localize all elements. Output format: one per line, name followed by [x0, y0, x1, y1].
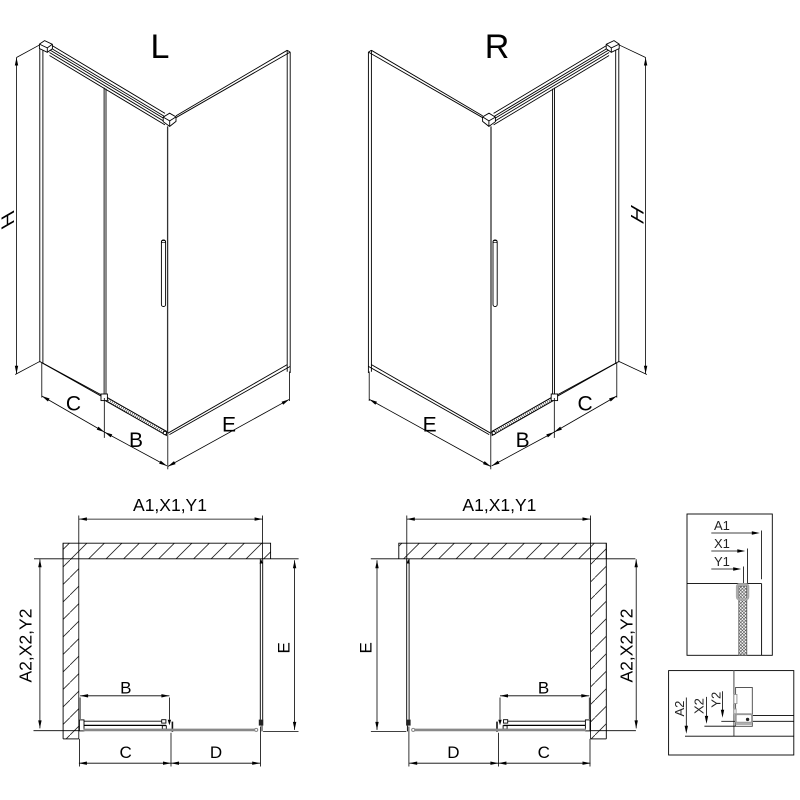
svg-text:E: E: [275, 642, 294, 653]
svg-text:A2,X2,Y2: A2,X2,Y2: [617, 609, 637, 683]
svg-text:C: C: [119, 743, 131, 762]
svg-text:B: B: [120, 679, 131, 698]
svg-text:X1: X1: [714, 536, 730, 551]
svg-text:C: C: [578, 393, 593, 416]
svg-text:C: C: [538, 743, 550, 762]
svg-text:X2: X2: [692, 698, 707, 714]
svg-text:A1: A1: [714, 518, 730, 533]
svg-text:E: E: [423, 414, 437, 437]
svg-text:A2: A2: [672, 701, 687, 717]
svg-text:L: L: [151, 28, 170, 66]
svg-text:R: R: [485, 28, 510, 66]
svg-text:A1,X1,Y1: A1,X1,Y1: [462, 495, 536, 515]
svg-text:Y1: Y1: [714, 554, 730, 569]
svg-text:C: C: [66, 393, 81, 416]
svg-text:B: B: [538, 679, 549, 698]
svg-text:B: B: [129, 429, 143, 452]
svg-text:E: E: [222, 414, 236, 437]
svg-text:Y2: Y2: [709, 692, 724, 708]
svg-text:D: D: [210, 743, 222, 762]
svg-text:E: E: [357, 642, 376, 653]
svg-text:D: D: [447, 743, 459, 762]
svg-text:A1,X1,Y1: A1,X1,Y1: [133, 495, 207, 515]
svg-text:B: B: [516, 429, 530, 452]
svg-text:A2,X2,Y2: A2,X2,Y2: [16, 609, 36, 683]
